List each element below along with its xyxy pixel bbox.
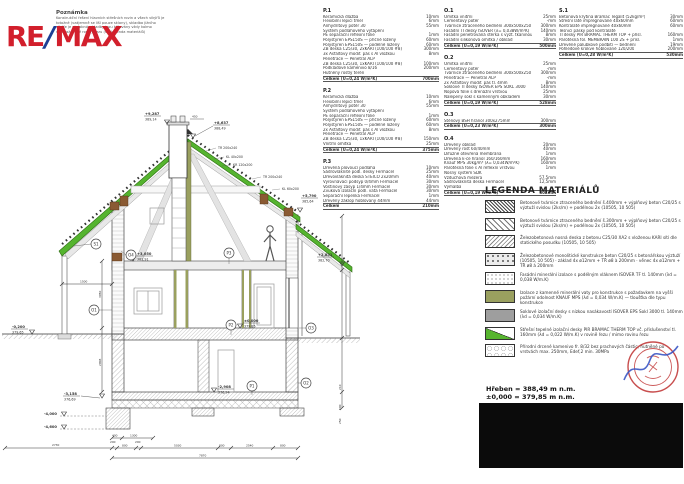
ground-floor-slab bbox=[112, 328, 298, 340]
rc-slab-hatch-swatch bbox=[485, 235, 515, 248]
door-inner-frame bbox=[257, 287, 271, 325]
dim-200a: 200 bbox=[110, 440, 116, 444]
legend-item: Izolace z kamenné minerální vaty pro kon… bbox=[485, 290, 683, 305]
member-label-tr1: TR 200x240 bbox=[217, 146, 237, 150]
gravel-bed bbox=[112, 400, 298, 408]
partition-stud bbox=[186, 270, 189, 328]
spec-total: Celkem (U=0,24 W/m²K)700mm bbox=[323, 76, 439, 83]
dim-250: 250 bbox=[338, 418, 342, 424]
svg-text:O2: O2 bbox=[303, 381, 309, 386]
spec-rows: Omítka vnitřní25mmCementový potěr-mmTvár… bbox=[444, 15, 556, 43]
drawing-sheet: Poznámka Konstrukční řešení hlavních stř… bbox=[0, 0, 684, 484]
spec-o1: O.1 Omítka vnitřní25mmCementový potěr-mm… bbox=[444, 8, 556, 49]
svg-text:+8,637: +8,637 bbox=[214, 121, 229, 125]
spec-o2: O.2 Omítka vnitřní25mmCementový potěr-mm… bbox=[444, 55, 556, 106]
elevation-right-eave: +5,790385,64 bbox=[298, 194, 319, 212]
left-footing bbox=[106, 408, 130, 429]
dim-2540: 2540 bbox=[246, 444, 254, 448]
chimney-shaft bbox=[172, 178, 186, 261]
building-section-drawing: 450 +9,287389,14 +8,637388,49 bbox=[2, 98, 360, 478]
porch-post-pad bbox=[58, 334, 71, 339]
partition-stud bbox=[174, 270, 177, 328]
remax-logo: RE/MAX bbox=[6, 22, 121, 52]
left-basement-wall bbox=[112, 334, 124, 392]
right-footing bbox=[280, 408, 304, 416]
zero-level: ±0,000 = 379,85 m n.m. bbox=[486, 394, 575, 402]
concrete-dots-swatch bbox=[485, 253, 515, 266]
chimney-flue-cap bbox=[171, 116, 176, 122]
datum-levels: Hřeben = 388,49 m n.m. ±0,000 = 379,85 m… bbox=[486, 386, 575, 401]
svg-text:-4,000: -4,000 bbox=[44, 412, 57, 416]
elevation-grade: -0,200379,65 bbox=[11, 325, 35, 335]
spec-total: Celkem (U=0,23 W/m²K)300mm bbox=[444, 123, 556, 130]
right-basement-wall bbox=[286, 338, 298, 392]
legend-item: Železobetonové monolitické konstrukce be… bbox=[485, 253, 683, 268]
spec-rows: Dřevěný obklad20mmDřevěný rošt 60/40mm40… bbox=[444, 143, 556, 190]
svg-text:P1: P1 bbox=[250, 384, 255, 389]
chimney-cap-plate bbox=[167, 122, 189, 125]
figure-head bbox=[267, 226, 273, 232]
svg-text:379,85: 379,85 bbox=[244, 325, 256, 329]
svg-text:382,91: 382,91 bbox=[137, 258, 149, 262]
left-wall-plate bbox=[110, 202, 119, 210]
elevation-footing-top: -3,158376,69 bbox=[63, 392, 105, 402]
basement-partition bbox=[198, 340, 209, 392]
bubble-o2: O2 bbox=[298, 378, 311, 388]
spec-total: Celkem (U=0,19 W/m²K)528mm bbox=[444, 100, 556, 107]
dim-800b: 800 bbox=[219, 444, 225, 448]
spec-p1: P.1 Keramická dlažba10mmFlexibilní lepic… bbox=[323, 8, 439, 82]
green-pir-swatch bbox=[485, 327, 515, 340]
human-figure bbox=[264, 226, 276, 261]
svg-text:+5,790: +5,790 bbox=[302, 194, 317, 198]
svg-text:-4,600: -4,600 bbox=[44, 425, 57, 429]
basement-floor-slab bbox=[112, 392, 298, 400]
spec-total: Celkem (U=0,28 W/m²K)530mm bbox=[559, 52, 683, 59]
authorization-stamp bbox=[620, 336, 682, 398]
dim-200b: 200 bbox=[135, 440, 141, 444]
dim-2908: 2908 bbox=[98, 358, 102, 366]
elevation-footing-a: -4,000 bbox=[44, 412, 67, 416]
svg-text:385,64: 385,64 bbox=[302, 200, 314, 204]
logo-max: MAX bbox=[54, 20, 121, 53]
svg-text:O1: O1 bbox=[91, 308, 97, 313]
logo-slash: / bbox=[44, 20, 55, 53]
left-sill-beam bbox=[112, 253, 122, 261]
collar-tie bbox=[131, 186, 260, 193]
terrace-post bbox=[346, 272, 350, 336]
figure-body bbox=[264, 232, 276, 261]
dim-800c: 800 bbox=[280, 444, 286, 448]
bubble-o1: O1 bbox=[89, 305, 112, 315]
svg-text:+3,050: +3,050 bbox=[137, 252, 152, 256]
mineral-insulation-swatch bbox=[485, 272, 515, 285]
elevation-footing-b: -4,600 bbox=[44, 425, 67, 429]
dim-5030: 5030 bbox=[174, 444, 182, 448]
svg-text:376,69: 376,69 bbox=[64, 398, 76, 402]
legend-item: Fasádní minerální izolace s podélným vlá… bbox=[485, 272, 683, 285]
left-exterior-wall bbox=[112, 202, 124, 334]
spec-o3: O.3 Stěnový BSH hranol 300x275mm300mm Ce… bbox=[444, 112, 556, 130]
right-purlin bbox=[260, 194, 268, 204]
dim-210: 210 bbox=[338, 384, 342, 390]
chimney-dim-label: 450 bbox=[192, 115, 198, 119]
chimney-flue-cap bbox=[180, 116, 185, 122]
gravel-swatch bbox=[485, 344, 515, 357]
elevation-ridge: +8,637388,49 bbox=[191, 121, 231, 138]
svg-text:388,49: 388,49 bbox=[214, 127, 226, 131]
svg-text:P3: P3 bbox=[227, 251, 232, 256]
member-label-kl2: KL 60x200 bbox=[282, 187, 299, 191]
dim-1300: 1300 bbox=[130, 434, 138, 438]
grey-eps-swatch bbox=[485, 309, 515, 322]
spec-column-roof: S.1 Betonová krytina Bramac Tegalit (52k… bbox=[559, 8, 683, 65]
dim-2730: 2730 bbox=[52, 443, 60, 447]
svg-text:S1: S1 bbox=[93, 242, 99, 247]
chimney-body bbox=[169, 124, 187, 178]
member-label-kr1: KR 120x200 bbox=[233, 163, 252, 167]
olive-insulation-swatch bbox=[485, 290, 515, 303]
block-hatch-light-swatch bbox=[485, 218, 515, 231]
legend-item: Železobetonová nosná deska z betonu C25/… bbox=[485, 235, 683, 248]
lower-roof-insulation bbox=[296, 224, 352, 272]
spec-rows: Omítka vnitřní25mmCementový potěr-mmTvár… bbox=[444, 62, 556, 100]
left-purlin bbox=[120, 196, 128, 206]
porch-post bbox=[62, 256, 67, 334]
mid-footing bbox=[192, 408, 214, 416]
spec-s1: S.1 Betonová krytina Bramac Tegalit (52k… bbox=[559, 8, 683, 59]
svg-text:O4: O4 bbox=[128, 253, 134, 258]
attic-floor-slab bbox=[112, 261, 298, 270]
dim-3050: 3050 bbox=[98, 290, 102, 298]
dim-800a: 800 bbox=[122, 444, 128, 448]
spec-rows: Betonová krytina Bramac Tegalit (52kg/m²… bbox=[559, 15, 683, 53]
redacted-title-block bbox=[479, 403, 683, 468]
svg-text:-3,158: -3,158 bbox=[64, 392, 77, 396]
roof bbox=[59, 129, 352, 278]
svg-text:P2: P2 bbox=[229, 323, 234, 328]
elevation-chimney-top: +9,287389,14 bbox=[144, 112, 170, 124]
svg-text:-0,200: -0,200 bbox=[12, 325, 25, 329]
dim-400: 400 bbox=[112, 434, 118, 438]
legend-item: Betonové tvárnice ztraceného bednění š.3… bbox=[485, 218, 683, 231]
svg-text:379,65: 379,65 bbox=[12, 331, 24, 335]
elevation-zero: ±0,000379,85 bbox=[238, 319, 261, 329]
svg-text:376,94: 376,94 bbox=[218, 391, 230, 395]
member-label-kl1: KL 40x200 bbox=[226, 155, 243, 159]
right-wall-door-opening bbox=[286, 278, 298, 328]
spec-rows: Keramická dlažba10mmFlexibilní lepicí tm… bbox=[323, 15, 439, 76]
dim-500: 500 bbox=[338, 404, 342, 410]
logo-re: RE bbox=[6, 20, 44, 53]
svg-text:+9,287: +9,287 bbox=[145, 112, 160, 116]
spec-column-walls: O.1 Omítka vnitřní25mmCementový potěr-mm… bbox=[444, 8, 556, 202]
legend-title: LEGENDA MATERIÁLŮ bbox=[485, 186, 683, 196]
member-label-tr2: TR 200x240 bbox=[262, 175, 282, 179]
svg-text:-2,908: -2,908 bbox=[218, 385, 231, 389]
spec-total: Celkem (U=0,19 W/m²K)500mm bbox=[444, 43, 556, 50]
svg-text:382,70: 382,70 bbox=[318, 259, 330, 263]
legend-item: Betonové tvárnice ztraceného bednění š.4… bbox=[485, 200, 683, 213]
stamp-emblem bbox=[645, 356, 661, 379]
dim-1500: 1500 bbox=[80, 280, 88, 284]
svg-text:+2,851: +2,851 bbox=[318, 253, 333, 257]
legend-item: Soklové izolační desky s nízkou nasákavo… bbox=[485, 309, 683, 322]
right-wall-plate bbox=[284, 208, 293, 216]
svg-text:389,14: 389,14 bbox=[145, 118, 157, 122]
svg-text:±0,000: ±0,000 bbox=[244, 319, 259, 323]
block-hatch-dark-swatch bbox=[485, 200, 515, 213]
dim-total-7870: 7870 bbox=[199, 454, 207, 458]
svg-text:O3: O3 bbox=[308, 326, 314, 331]
